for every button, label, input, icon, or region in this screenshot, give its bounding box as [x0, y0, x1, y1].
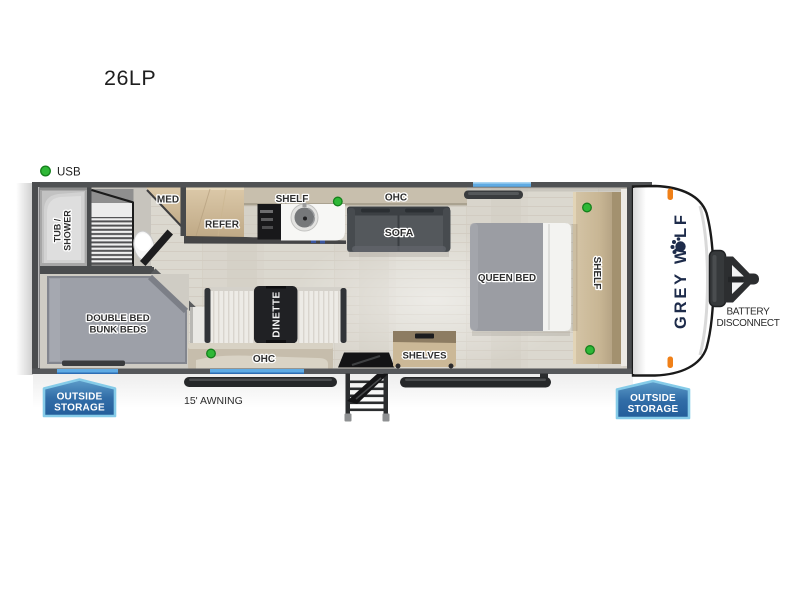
svg-text:REFER: REFER — [205, 220, 240, 231]
svg-text:26LP: 26LP — [104, 66, 156, 90]
svg-text:DOUBLE BED: DOUBLE BED — [86, 313, 149, 324]
svg-text:SHELF: SHELF — [591, 257, 602, 290]
svg-text:STORAGE: STORAGE — [628, 404, 679, 415]
svg-text:SHELVES: SHELVES — [402, 351, 447, 362]
svg-text:STORAGE: STORAGE — [54, 403, 105, 414]
svg-text:OUTSIDE: OUTSIDE — [57, 392, 103, 403]
svg-text:BATTERY: BATTERY — [726, 307, 770, 318]
svg-text:MED: MED — [157, 195, 179, 206]
svg-text:GREY W: GREY W — [672, 246, 690, 329]
svg-text:OUTSIDE: OUTSIDE — [630, 393, 676, 404]
svg-text:QUEEN BED: QUEEN BED — [478, 273, 536, 284]
svg-text:TUB /: TUB / — [53, 218, 63, 242]
svg-text:DISCONNECT: DISCONNECT — [716, 318, 779, 329]
svg-text:15' AWNING: 15' AWNING — [184, 395, 243, 407]
svg-text:USB: USB — [57, 167, 81, 179]
svg-text:OHC: OHC — [253, 354, 275, 365]
svg-text:SHOWER: SHOWER — [63, 210, 73, 251]
svg-text:LF: LF — [672, 212, 690, 238]
svg-text:BUNK BEDS: BUNK BEDS — [89, 325, 147, 336]
svg-text:SOFA: SOFA — [385, 227, 414, 239]
svg-text:OHC: OHC — [385, 193, 407, 204]
svg-text:DINETTE: DINETTE — [271, 291, 282, 337]
